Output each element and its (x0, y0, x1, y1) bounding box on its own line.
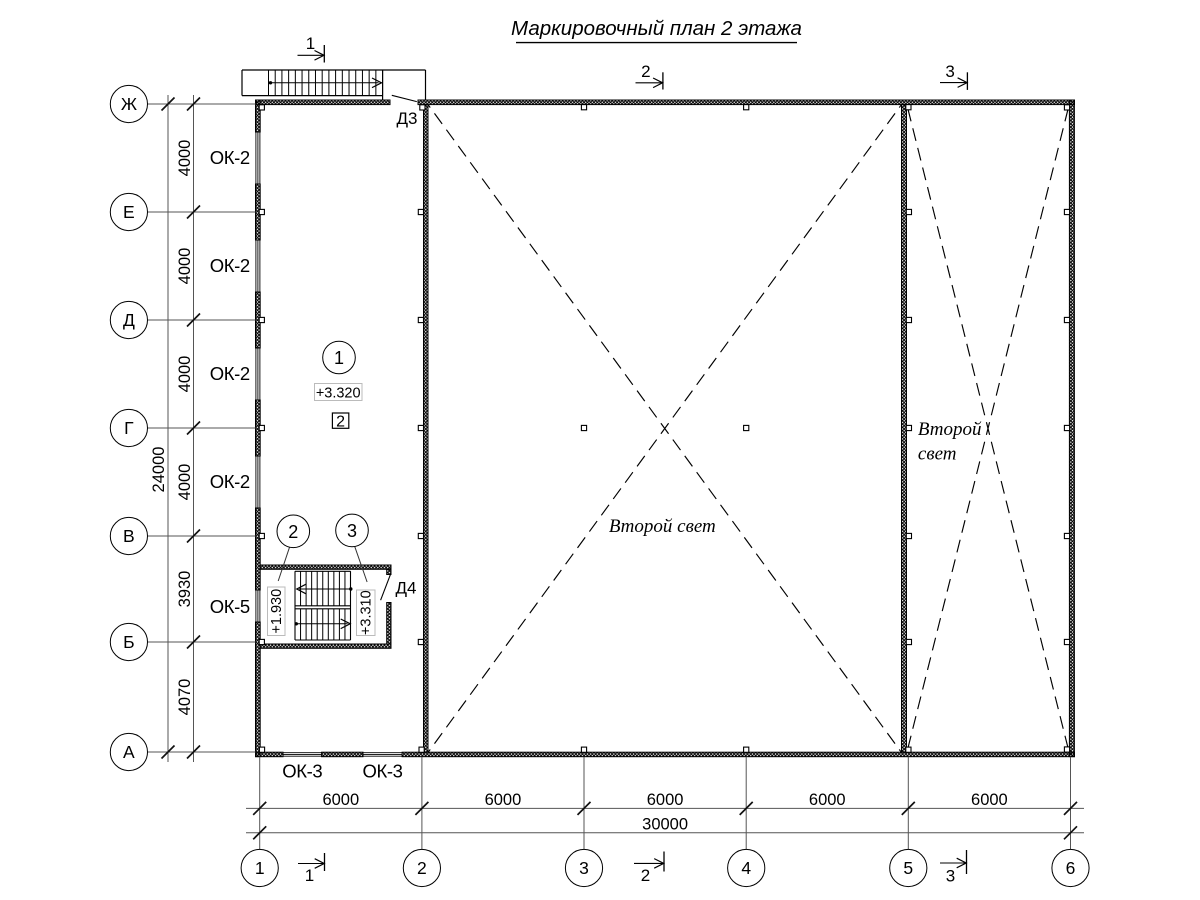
svg-text:1: 1 (334, 348, 344, 368)
svg-text:4000: 4000 (176, 140, 194, 177)
svg-text:Второй свет: Второй свет (609, 516, 716, 537)
svg-text:1: 1 (306, 34, 315, 53)
svg-text:А: А (123, 742, 135, 762)
svg-text:2: 2 (641, 866, 650, 885)
svg-text:Д3: Д3 (397, 109, 418, 128)
svg-text:4: 4 (741, 858, 751, 878)
svg-text:В: В (123, 526, 135, 546)
svg-text:Д: Д (123, 310, 135, 330)
svg-text:2: 2 (641, 62, 650, 81)
svg-text:6000: 6000 (809, 791, 846, 809)
svg-text:3: 3 (579, 858, 589, 878)
svg-text:Второй: Второй (918, 419, 982, 440)
svg-text:Г: Г (124, 418, 134, 438)
svg-text:ОК-5: ОК-5 (210, 596, 250, 617)
svg-text:6000: 6000 (322, 791, 359, 809)
svg-text:6000: 6000 (485, 791, 522, 809)
svg-text:6: 6 (1066, 858, 1076, 878)
svg-text:ОК-3: ОК-3 (282, 760, 322, 781)
svg-text:3: 3 (347, 521, 357, 541)
svg-text:ОК-2: ОК-2 (210, 255, 250, 276)
svg-text:5: 5 (903, 858, 913, 878)
svg-text:ОК-2: ОК-2 (210, 471, 250, 492)
svg-text:Маркировочный план 2 этажа: Маркировочный план 2 этажа (511, 17, 802, 40)
svg-text:4070: 4070 (176, 679, 194, 716)
svg-text:ОК-3: ОК-3 (362, 760, 402, 781)
svg-text:3: 3 (945, 62, 954, 81)
svg-text:ОК-2: ОК-2 (210, 147, 250, 168)
svg-text:+3.310: +3.310 (359, 590, 375, 635)
svg-text:24000: 24000 (150, 447, 168, 493)
svg-text:3: 3 (946, 867, 955, 886)
svg-text:1: 1 (305, 866, 314, 885)
svg-text:2: 2 (288, 522, 298, 542)
svg-text:Ж: Ж (121, 94, 137, 114)
svg-text:+1.930: +1.930 (269, 589, 285, 634)
svg-text:3930: 3930 (176, 571, 194, 608)
svg-text:Е: Е (123, 202, 135, 222)
svg-text:Д4: Д4 (396, 578, 417, 597)
svg-text:Б: Б (123, 632, 134, 652)
svg-text:4000: 4000 (176, 248, 194, 285)
svg-text:свет: свет (918, 444, 957, 465)
svg-text:2: 2 (336, 413, 345, 430)
svg-text:30000: 30000 (642, 815, 688, 833)
svg-text:1: 1 (255, 858, 265, 878)
svg-text:ОК-2: ОК-2 (210, 363, 250, 384)
svg-text:2: 2 (417, 858, 427, 878)
svg-text:4000: 4000 (176, 356, 194, 393)
svg-text:4000: 4000 (176, 464, 194, 501)
svg-text:6000: 6000 (971, 791, 1008, 809)
svg-text:6000: 6000 (647, 791, 684, 809)
svg-text:+3.320: +3.320 (316, 385, 361, 401)
